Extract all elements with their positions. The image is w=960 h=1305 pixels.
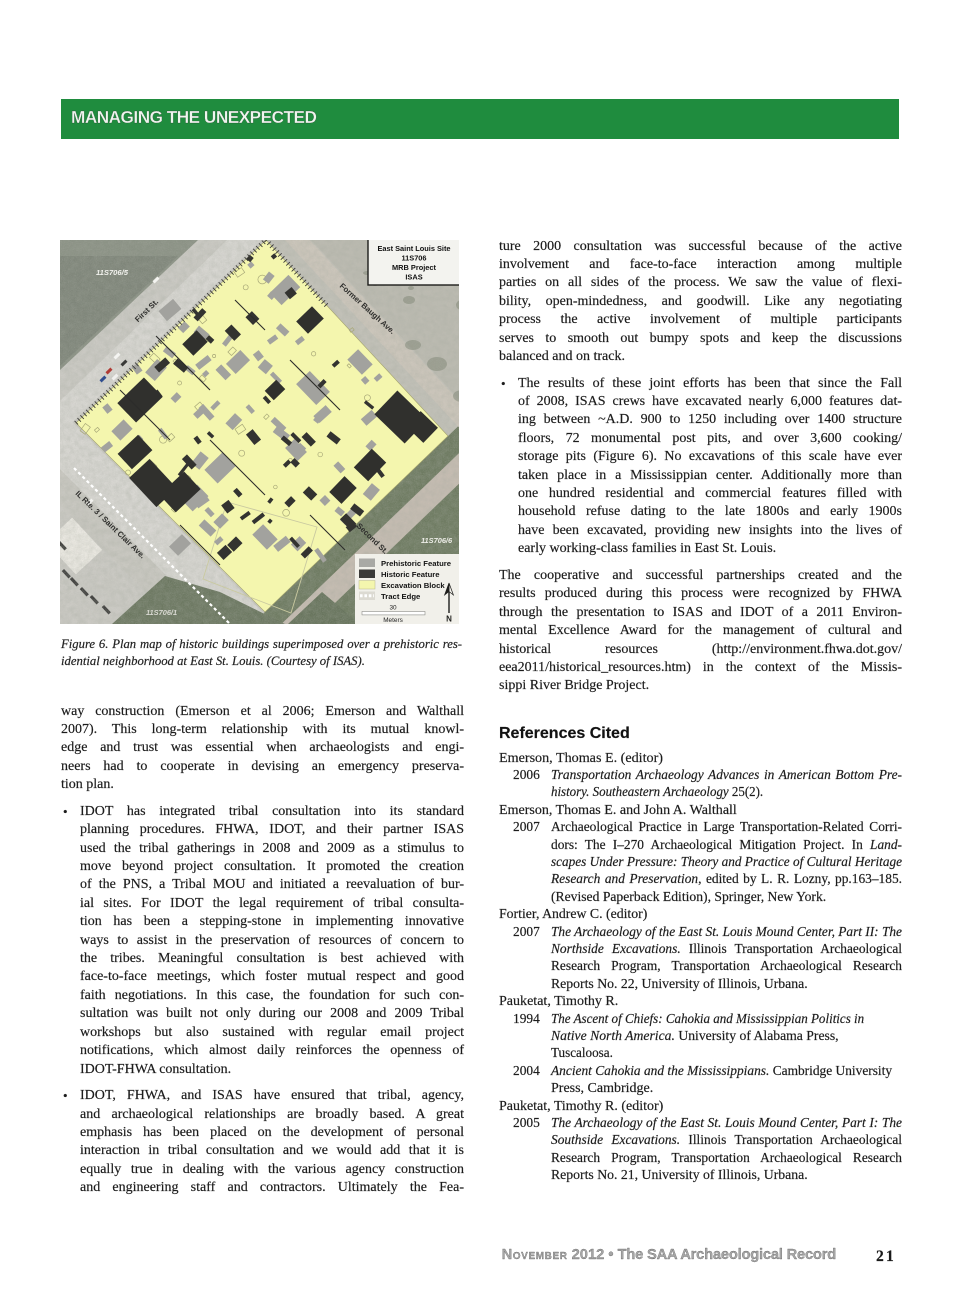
svg-text:Historic Feature: Historic Feature: [381, 570, 440, 579]
svg-text:Excavation Block: Excavation Block: [381, 581, 445, 590]
svg-text:11S706/5: 11S706/5: [96, 268, 129, 277]
svg-text:30: 30: [389, 605, 397, 612]
svg-text:East Saint Louis Site: East Saint Louis Site: [377, 244, 450, 253]
svg-text:N: N: [446, 615, 452, 624]
svg-text:11S706/1: 11S706/1: [146, 608, 177, 617]
svg-text:MRB Project: MRB Project: [392, 263, 436, 272]
svg-text:ISAS: ISAS: [405, 273, 422, 282]
svg-text:11S706/6: 11S706/6: [421, 536, 453, 545]
svg-text:Tract Edge: Tract Edge: [381, 592, 421, 601]
svg-text:Meters: Meters: [383, 617, 403, 624]
svg-text:Prehistoric Feature: Prehistoric Feature: [381, 559, 452, 568]
svg-text:11S706: 11S706: [401, 254, 426, 263]
